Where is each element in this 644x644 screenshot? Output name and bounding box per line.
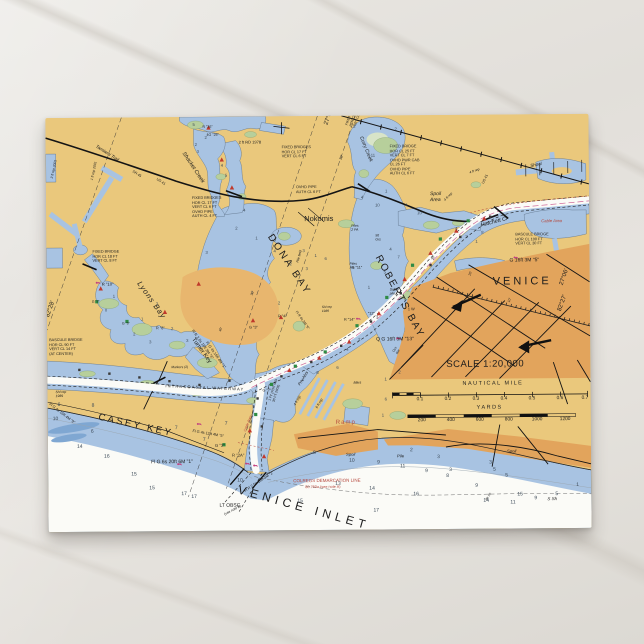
depth-sounding: 2 [290,261,292,266]
depth-sounding: 17 [181,491,187,497]
label-intracoastal-waterway: INTRACOASTAL WATERWAY [165,384,244,392]
depth-sounding: 3 [489,460,492,466]
depth-sounding: 10 [53,416,59,422]
label-sr45: SR 45 [131,169,142,178]
depth-sounding: 7 [203,437,206,443]
depth-sounding: 9 [475,483,478,489]
label-rd-1978: 2 ft RD 1978 [239,140,262,145]
depth-sounding: 11 [371,153,375,158]
depth-sounding: 10 [237,478,243,484]
label-hatchett-cr: Hatchett Cr [480,216,509,229]
depth-sounding: 3 [205,250,207,255]
label-buoy-r10: R "10" [102,282,114,287]
depth-sounding: 6 [324,256,326,261]
label-light-flg5: Fl G 4s 12ft 4M "5" [192,429,224,439]
depth-sounding: 10 [349,458,355,464]
label-1ftrep-2001: 1 ft rep 2001 [90,161,98,180]
depth-sounding: 9 [377,460,380,466]
marble-background: SCALE 1:20,000 NAUTICAL MILE YARDS Tamia… [0,0,644,644]
depth-sounding: 7 [225,421,228,427]
nautical-mile-tick: 0.5 [529,396,536,401]
label-nokomis: Nokomis [304,214,333,223]
note-fixed-bridge-20: FIXED BRIDGE HOR CL 20 FT VERT CL 7 FT [345,114,364,129]
depth-sounding: 0 [105,308,107,313]
depth-sounding: 3 [437,454,440,460]
depth-sounding: 15 [297,498,303,504]
depth-sounding: 4 [221,163,223,168]
depth-sounding: 2 [358,337,360,342]
depth-sounding: 7 [175,425,178,431]
depth-sounding: 3 [306,266,308,271]
depth-sounding: 4 [243,208,245,213]
nautical-mile-label: NAUTICAL MILE [462,380,523,386]
depth-sounding: 4 [361,195,363,200]
note-fixed-bridges-b: FIXED BRIDGES HOR CL 17 FT VERT CL 6 FT … [192,196,222,219]
note-bascule-90: BASCULE BRIDGE HOR CL 90 FT VERT CL 14 F… [49,338,82,356]
nautical-mile-tick: 0.4 [501,397,508,402]
depth-sounding: 7 [397,254,399,259]
depth-sounding: 9 [534,495,537,501]
label-4ftrep-a: 4 ft rep [293,395,302,406]
depth-sounding: 2 [398,369,400,374]
label-6ftrep: 6 ft rep [315,398,324,409]
label-3ftrep-2001: 3 ft rep 2001 [50,159,58,178]
label-casey-key: CASEY KEY [97,412,174,440]
depth-sounding: 5 [493,467,496,473]
depth-sounding: 10 [417,210,422,215]
note-fixed-bridge-25: FIXED BRIDGE HOR CL 25 FT VERT CL 7 FT O… [390,144,420,176]
nautical-mile-tick: 0.7 [582,396,589,401]
label-spoil-2: Spoil [507,448,516,453]
graticule-82-28: 82°28' [45,300,57,318]
depth-sounding: 15 [131,471,137,477]
depth-sounding: 8 [446,473,449,479]
label-cable-area-2: Cable Area [243,415,253,432]
depth-sounding: 2 [205,135,207,140]
depth-sounding: 2 [394,126,396,131]
label-buoy-4g25: 4G "25" [207,133,219,137]
depth-sounding: 11 [400,463,405,469]
label-colregs: COLREGS DEMARCATION LINE [293,478,360,484]
depth-sounding: 1 [141,316,143,321]
depth-sounding: 6 [385,396,387,401]
label-buoy-g5-lyons: G "5" [122,321,130,325]
label-buoy-r26: R "26" [202,125,212,129]
graticule-tick-30b: 30' [431,255,436,261]
note-ovhd-pipe: OVHD PIPE AUTH CL 6 FT [296,185,321,194]
depth-sounding: 14 [483,498,489,504]
graticule-tick-20: 20' [468,271,473,277]
label-roberts-bay: ROBERTS BAY [372,253,426,340]
label-us41-b: US 41 [481,174,489,185]
scale-title: SCALE 1:20,000 [446,358,524,370]
label-buoy-r14: R "14" [344,318,355,323]
depth-sounding: 1 [368,285,370,290]
depth-sounding: 8 [481,230,483,235]
note-1ft-2003: 1 FT (FOR MID 30 FT 2003) [269,379,283,403]
depth-sounding: 5 [555,491,558,497]
depth-sounding: 17 [191,494,197,500]
yards-label: YARDS [477,405,503,411]
depth-sounding: 6 [58,402,61,408]
depth-sounding: 1 [384,376,386,381]
yards-tick: 800 [505,417,513,422]
depth-sounding: 2 [171,326,173,331]
graticule-tick-10: 10' [507,297,512,303]
depth-sounding: 16 [104,454,110,460]
depth-sounding: 2 [278,300,280,305]
depth-sounding: 4 [405,202,407,207]
depth-sounding: 1 [113,294,115,299]
depth-sounding: 5 [384,269,386,274]
label-venice: VENICE [493,275,552,289]
label-shacket-creek: Shacket Creek [180,151,205,185]
depth-sounding: 10 [375,203,380,208]
label-light-g5: G 16ft 3M "5" [509,257,539,263]
note-fixed-bridge-18: FIXED BRIDGE HOR CL 18 FT VERT CL 8 FT [92,250,119,264]
depth-sounding: 1 [475,239,477,244]
depth-sounding: 2 [195,142,197,147]
depth-sounding: 3 [197,149,199,154]
nautical-mile-tick: 0.2 [445,397,452,402]
depth-sounding: 2 [410,447,413,453]
depth-sounding: 1 [385,188,387,193]
depth-sounding: 5 [225,173,227,178]
label-1w: 1 W [408,307,415,312]
depth-sounding: 1 [576,482,579,488]
depth-sounding: 4 [389,246,391,251]
label-flr4s: Fl R 4s 3M "6" [295,310,311,330]
label-buoy-g3-inlet: G "3" [215,443,225,448]
depth-sounding: 4 [455,226,457,231]
label-buoy-12: "12" [368,312,375,317]
depth-sounding: 3 [449,467,452,473]
depth-sounding: 6 [91,429,94,435]
depth-sounding: 15 [517,491,523,497]
label-buoy-r8: R "8" [156,326,165,331]
label-buoy-g7-lyons: G "7" [92,300,100,304]
depth-sounding: 2 [133,331,135,336]
depth-sounding: 4 [346,347,348,352]
label-subm-pile: Subm pile [390,287,399,295]
label-shl-rep-1989: Shl rep 1989 [56,390,67,398]
graticule-tick-40: 40' [218,327,223,333]
label-venice-inlet: VENICE INLET [236,483,371,533]
depth-sounding: 3 [376,315,378,320]
note-bascule-100: BASCULE BRIDGE HOR CL 100 FT VERT CL 30 … [515,232,548,246]
depth-sounding: 2 [465,234,467,239]
depth-sounding: 13 [335,481,341,487]
depth-sounding: 16 [413,491,419,497]
depth-sounding: 5 [192,122,194,127]
depth-sounding: 15 [149,485,155,491]
label-4ftrep-c: 4 ft rep [443,191,453,201]
graticule-82-27: 82°27' [557,294,569,312]
graticule-27-07: 27°07' [323,114,335,126]
label-light-qg13: Q G 16ft 3M "13" [376,336,414,342]
depth-sounding: 3 [149,339,151,344]
yards-tick: 400 [447,418,455,423]
depth-sounding: 17 [373,508,379,514]
label-us41-a: US 41 [156,177,167,186]
depth-sounding: 3 [186,338,188,343]
label-pile: Pile [397,453,404,458]
label-shoal: Shoal [530,161,542,169]
label-mkrs: Mkrs [353,381,361,385]
nautical-mile-tick: 0.3 [473,397,480,402]
depth-sounding: 14 [369,486,375,492]
label-lyons-bay: Lyons Bay [135,279,168,320]
depth-sounding: 11 [510,499,515,505]
label-oys-bar: Oys Bar [392,346,401,355]
nautical-mile-tick: 0.1 [417,397,424,402]
depth-sounding: 14 [77,444,83,450]
label-tamiami-trail: Tamiami Trail [95,144,120,163]
label-shl-rep-1989-b: Shl rep 1989 [322,306,332,314]
label-piles-2pa: Piles 2 PA [351,224,358,232]
label-cable-area-1: Cable Area [541,218,562,223]
nautical-chart-postcard: SCALE 1:20,000 NAUTICAL MILE YARDS Tamia… [45,114,591,532]
label-buoy-r2a: R "2A" [232,453,244,458]
yards-tick: 200 [418,418,426,423]
depth-sounding: 1 [255,235,257,240]
nautical-mile-tick: 0.6 [557,396,564,401]
label-spoil-area: Spoil Area [430,191,441,203]
depth-sounding: 3 [302,248,304,253]
depth-sounding: 4 [273,248,275,253]
label-spoil-1: Spoil [346,452,355,457]
note-50ft: 50' [339,154,345,160]
label-4ftrep-b: 4 ft rep [469,167,480,175]
depth-sounding: 8 [92,403,95,409]
depth-sounding: 8 [313,450,316,456]
depth-sounding: 2 [156,301,158,306]
depth-sounding: 7 [251,291,253,296]
label-buoy-g3-dona: G "3" [249,325,258,330]
chart-labels-layer: SCALE 1:20,000 NAUTICAL MILE YARDS Tamia… [45,114,591,532]
depth-sounding: 2 [235,226,237,231]
yards-tick: 1200 [560,417,571,422]
label-5ft-grs: 5ft Grs [375,234,381,242]
depth-sounding: 6 [336,365,338,370]
depth-sounding: 8 [316,370,318,375]
depth-sounding: 4 [301,377,303,382]
label-markers: Markers (2) [171,366,188,370]
yards-tick: 600 [476,418,484,423]
graticule-27-06: 27°06' [559,268,571,286]
depth-sounding: 1 [382,412,384,417]
note-fixed-bridges-a: FIXED BRIDGES HOR CL 17 FT VERT CL 6 FT [282,145,311,159]
depth-sounding: 5 [505,473,508,479]
depth-sounding: 9 [425,468,428,474]
label-ramp: Ramp [336,420,356,427]
label-light-flg6s: Fl G 6s 20ft 6M "1" [151,459,193,465]
label-curry-creek: Curry Creek [358,136,374,163]
depth-sounding: 1 [314,253,316,258]
yards-tick: 1000 [532,417,543,422]
label-buoy-g11: G "11" [352,266,363,271]
label-buoy-r4: R "4" [278,314,287,319]
